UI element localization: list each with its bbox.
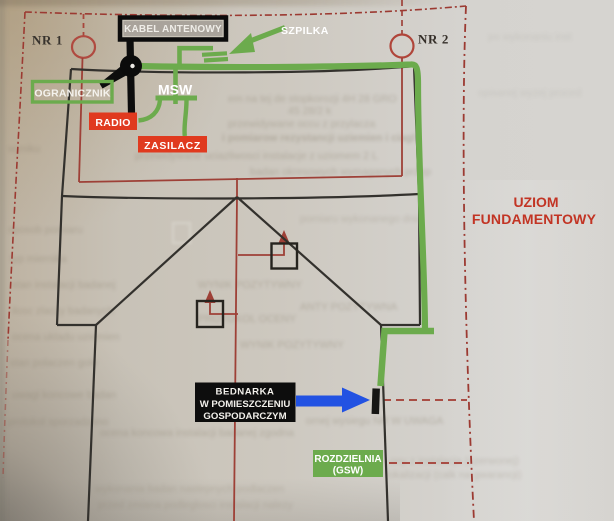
svg-text:i pomiarow rezystancji uziemie: i pomiarow rezystancji uziemien i ciagl: [222, 132, 415, 144]
svg-text:badan okresowych wymaganych pr: badan okresowych wymaganych przep: [250, 166, 431, 178]
svg-text:protokol sporzadzono: protokol sporzadzono: [8, 416, 109, 428]
svg-text:FUNDAMENTOWY: FUNDAMENTOWY: [472, 211, 597, 227]
svg-text:WYNIK POZYTYWNY: WYNIK POZYTYWNY: [240, 339, 344, 351]
svg-text:przewidywane occu z przylacza: przewidywane occu z przylacza: [228, 118, 375, 130]
svg-text:SZPILKA: SZPILKA: [281, 25, 329, 37]
svg-text:em na tej de stopkorozji 4H 28: em na tej de stopkorozji 4H 28 GRO: [228, 93, 397, 105]
svg-text:stan polaczen gole: stan polaczen gole: [10, 357, 98, 369]
svg-text:WYNIK POZYTYWNY: WYNIK POZYTYWNY: [198, 279, 302, 291]
svg-text:ROZDZIELNIA: ROZDZIELNIA: [314, 454, 381, 465]
svg-text:wyniku: wyniku: [7, 143, 40, 155]
svg-text:RADIO: RADIO: [95, 117, 130, 129]
svg-text:45 28/2 k: 45 28/2 k: [288, 105, 332, 117]
svg-text:opisanej wyzej proced: opisanej wyzej proced: [478, 87, 581, 99]
svg-text:lokalizacji (calk na gwarancji: lokalizacji (calk na gwarancji): [386, 469, 521, 481]
svg-text:przed zmiana podleglosci insta: przed zmiana podleglosci instalacji nale…: [98, 499, 294, 511]
svg-text:W POMIESZCZENIU: W POMIESZCZENIU: [200, 399, 291, 410]
svg-text:wykonania badan nastepnych pod: wykonania badan nastepnych podlaczen: [94, 483, 284, 495]
svg-text:ilosc zlaczy badanych: ilosc zlaczy badanych: [12, 305, 114, 317]
svg-text:ANTY POZYTYWNA: ANTY POZYTYWNA: [300, 301, 397, 313]
svg-text:GOSPODARCZYM: GOSPODARCZYM: [203, 411, 286, 422]
svg-text:po wykonaniu inst: po wykonaniu inst: [488, 31, 572, 43]
svg-text:MSW: MSW: [158, 82, 193, 98]
svg-text:ocena ukladu uziemien: ocena ukladu uziemien: [12, 331, 120, 343]
svg-text:typ miernika: typ miernika: [10, 253, 67, 265]
svg-text:ornej wysiegu NR W UWAGA: ornej wysiegu NR W UWAGA: [306, 415, 443, 427]
svg-text:OGRANICZNIK: OGRANICZNIK: [34, 88, 110, 100]
svg-text:ony z instalacja (czerwonej): ony z instalacja (czerwonej): [390, 455, 519, 467]
svg-text:ZASILACZ: ZASILACZ: [144, 140, 201, 152]
svg-text:UZIOM: UZIOM: [513, 194, 558, 210]
svg-text:NR 1: NR 1: [32, 33, 63, 48]
svg-text:ocena koncowa instalacji badan: ocena koncowa instalacji badanej zgodna: [100, 427, 294, 439]
svg-text:NR 2: NR 2: [418, 32, 449, 47]
svg-text:BEDNARKA: BEDNARKA: [216, 387, 275, 398]
svg-text:sposob pomiaru: sposob pomiaru: [8, 224, 83, 236]
svg-text:uwagi koncowe badan: uwagi koncowe badan: [12, 389, 116, 401]
svg-text:(GSW): (GSW): [333, 466, 364, 477]
svg-text:KABEL ANTENOWY: KABEL ANTENOWY: [124, 24, 222, 35]
svg-text:stan instalacji badanej: stan instalacji badanej: [12, 279, 115, 291]
svg-text:pomiaru wykonanego dnia: pomiaru wykonanego dnia: [300, 213, 423, 225]
